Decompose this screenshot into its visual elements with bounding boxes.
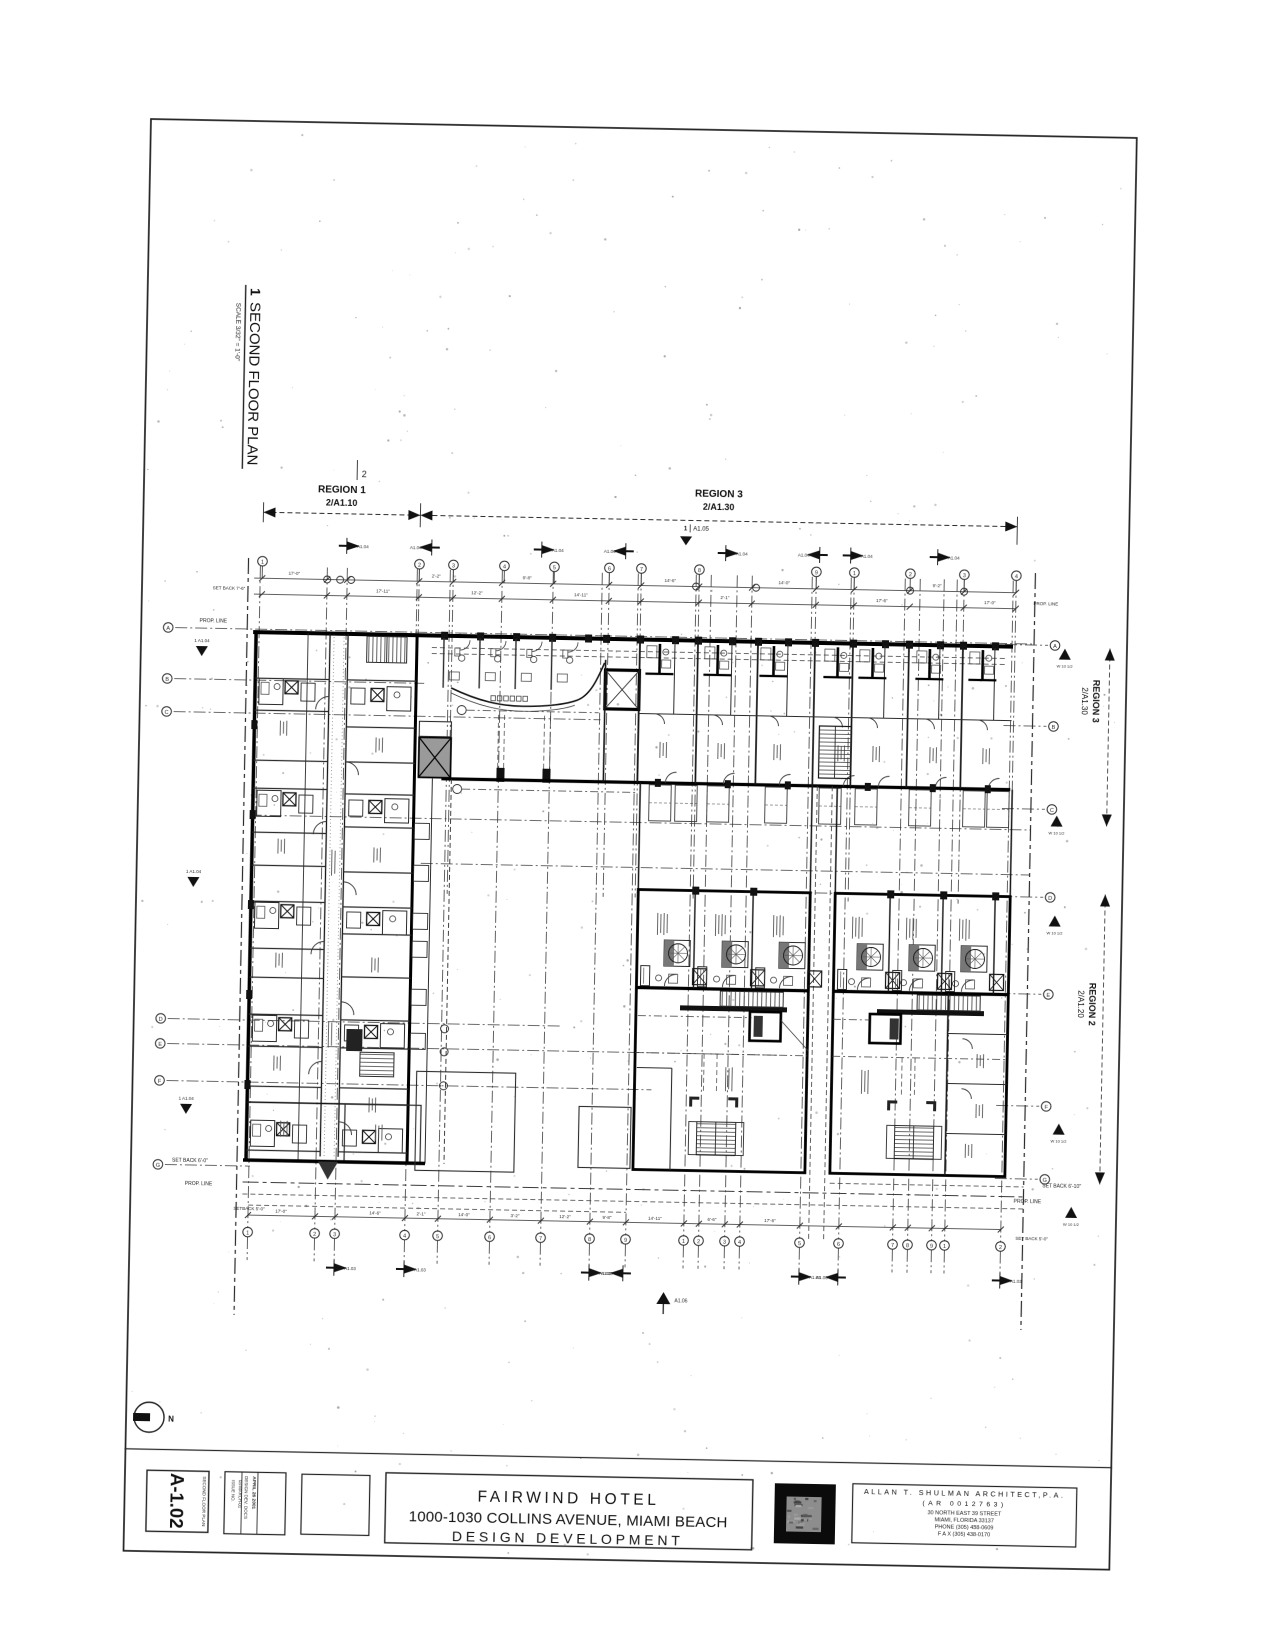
svg-text:A1.03: A1.03 <box>414 1267 426 1272</box>
svg-text:6: 6 <box>608 566 611 572</box>
svg-text:FAIRWIND HOTEL: FAIRWIND HOTEL <box>477 1489 659 1509</box>
svg-text:A1.03: A1.03 <box>816 1275 828 1280</box>
svg-text:14'-6": 14'-6" <box>664 578 676 583</box>
svg-text:MIAMI, FLORIDA 33137: MIAMI, FLORIDA 33137 <box>935 1517 994 1524</box>
svg-text:APRIL 26 2001: APRIL 26 2001 <box>250 1476 257 1509</box>
svg-text:E: E <box>158 1042 162 1048</box>
svg-text:1 A1.04: 1 A1.04 <box>179 1096 195 1101</box>
svg-text:9: 9 <box>624 1238 627 1244</box>
svg-text:PHONE (305) 438-0609: PHONE (305) 438-0609 <box>935 1524 994 1531</box>
svg-text:A1.04: A1.04 <box>736 551 748 556</box>
svg-text:9: 9 <box>815 570 818 576</box>
svg-text:DESIGN DEVELOPMENT: DESIGN DEVELOPMENT <box>452 1528 684 1548</box>
svg-text:2: 2 <box>697 1239 700 1245</box>
svg-text:1 A1.04: 1 A1.04 <box>186 869 202 874</box>
svg-text:A1.03: A1.03 <box>344 1266 356 1271</box>
svg-text:4: 4 <box>738 1240 741 1246</box>
svg-text:17'-11": 17'-11" <box>376 588 390 593</box>
svg-text:1: 1 <box>246 1231 249 1237</box>
svg-text:G: G <box>156 1163 160 1169</box>
svg-text:6'-6": 6'-6" <box>707 1217 716 1222</box>
svg-text:A: A <box>1053 644 1057 650</box>
svg-text:2'-1": 2'-1" <box>720 595 729 600</box>
svg-text:D: D <box>1048 896 1052 902</box>
svg-text:SCALE 3/32" = 1'-0": SCALE 3/32" = 1'-0" <box>233 303 241 362</box>
svg-text:REGION 3: REGION 3 <box>695 489 743 501</box>
svg-text:3: 3 <box>723 1240 726 1246</box>
svg-text:1: 1 <box>684 526 688 532</box>
svg-text:A1.04: A1.04 <box>410 545 422 550</box>
svg-text:REGION 2: REGION 2 <box>1087 983 1098 1026</box>
svg-text:C: C <box>1050 808 1054 814</box>
svg-text:12'-2": 12'-2" <box>471 590 483 595</box>
svg-text:2/A1.30: 2/A1.30 <box>703 502 735 513</box>
svg-text:2: 2 <box>418 563 421 569</box>
svg-text:7: 7 <box>640 567 643 573</box>
svg-text:B: B <box>165 677 169 683</box>
svg-text:2: 2 <box>362 469 367 479</box>
svg-text:A-1.02: A-1.02 <box>166 1473 188 1529</box>
svg-text:03-MARCH-01: 03-MARCH-01 <box>237 1480 243 1509</box>
svg-text:A1.05: A1.05 <box>693 527 709 533</box>
svg-text:A1.04: A1.04 <box>604 549 616 554</box>
svg-text:A1.04: A1.04 <box>552 548 564 553</box>
svg-text:A1.03: A1.03 <box>601 1271 613 1276</box>
svg-text:A1.03: A1.03 <box>1010 1279 1022 1284</box>
svg-text:1: 1 <box>853 571 856 577</box>
svg-text:DESIGN DEV. DOCS: DESIGN DEV. DOCS <box>243 1476 249 1519</box>
svg-text:12'-2": 12'-2" <box>559 1214 571 1219</box>
svg-text:1 A1.04: 1 A1.04 <box>194 638 210 643</box>
svg-text:W 10 1/2: W 10 1/2 <box>1050 1138 1067 1143</box>
svg-text:B: B <box>1052 725 1056 731</box>
svg-text:A1.04: A1.04 <box>948 555 960 560</box>
svg-text:F: F <box>1044 1105 1048 1111</box>
svg-text:9'-8": 9'-8" <box>602 1215 611 1220</box>
svg-text:A1.04: A1.04 <box>861 554 873 559</box>
svg-text:4: 4 <box>1015 574 1018 580</box>
svg-text:5: 5 <box>436 1234 439 1240</box>
svg-text:2/A1.30: 2/A1.30 <box>1080 687 1090 715</box>
svg-text:5: 5 <box>798 1241 801 1247</box>
svg-text:PROP. LINE: PROP. LINE <box>1033 601 1058 606</box>
svg-text:PROP. LINE: PROP. LINE <box>185 1181 213 1188</box>
svg-text:PROP. LINE: PROP. LINE <box>1014 1199 1042 1206</box>
svg-text:2: 2 <box>313 1232 316 1238</box>
svg-text:1: 1 <box>682 1239 685 1245</box>
svg-text:SET BACK 6'-0": SET BACK 6'-0" <box>172 1158 208 1165</box>
svg-text:(AR 0012763): (AR 0012763) <box>922 1500 1006 1509</box>
svg-text:E: E <box>1046 993 1050 999</box>
svg-text:17'-6": 17'-6" <box>876 598 888 603</box>
svg-text:A1.06: A1.06 <box>674 1298 687 1304</box>
svg-text:SET BACK 7'-6": SET BACK 7'-6" <box>213 585 246 591</box>
svg-text:D: D <box>159 1017 163 1023</box>
svg-text:F A X (305) 438-0170: F A X (305) 438-0170 <box>938 1531 990 1538</box>
svg-text:W 10 1/2: W 10 1/2 <box>1046 930 1063 935</box>
svg-text:REGION 3: REGION 3 <box>1091 680 1102 723</box>
svg-text:W 10 1/2: W 10 1/2 <box>1057 664 1074 669</box>
svg-text:SECOND FLOOR PLAN: SECOND FLOOR PLAN <box>243 302 263 466</box>
svg-text:2: 2 <box>909 572 912 578</box>
svg-text:2'-1": 2'-1" <box>416 1211 425 1216</box>
svg-text:SET BACK 6'-10": SET BACK 6'-10" <box>1042 1183 1081 1190</box>
svg-text:8: 8 <box>588 1237 591 1243</box>
svg-text:6: 6 <box>837 1242 840 1248</box>
svg-text:1: 1 <box>248 288 264 296</box>
svg-text:SET BACK 5'-0": SET BACK 5'-0" <box>1015 1236 1048 1242</box>
svg-text:SETBACK 5'-0": SETBACK 5'-0" <box>233 1206 265 1212</box>
svg-text:ALLAN T. SHULMAN ARCHITECT,P.A: ALLAN T. SHULMAN ARCHITECT,P.A. <box>864 1487 1066 1500</box>
svg-text:9'-2": 9'-2" <box>933 583 942 588</box>
svg-text:1: 1 <box>261 560 264 566</box>
svg-text:6: 6 <box>488 1235 491 1241</box>
svg-text:2/A1.10: 2/A1.10 <box>326 497 358 508</box>
svg-text:9'-8": 9'-8" <box>523 575 532 580</box>
svg-text:3: 3 <box>963 573 966 579</box>
svg-text:5: 5 <box>553 565 556 571</box>
svg-text:4: 4 <box>403 1234 406 1240</box>
svg-text:SECOND FLOOR PLAN: SECOND FLOOR PLAN <box>201 1476 207 1526</box>
svg-text:17'-6": 17'-6" <box>764 1218 776 1223</box>
svg-text:9: 9 <box>930 1244 933 1250</box>
svg-text:N: N <box>168 1415 174 1424</box>
svg-text:8: 8 <box>906 1243 909 1249</box>
svg-text:14'-11": 14'-11" <box>648 1216 662 1221</box>
svg-text:REGION 1: REGION 1 <box>318 484 366 496</box>
svg-text:14'-0": 14'-0" <box>778 580 790 585</box>
svg-text:A1.04: A1.04 <box>357 544 369 549</box>
svg-text:7: 7 <box>891 1243 894 1249</box>
svg-text:14'-0": 14'-0" <box>458 1212 470 1217</box>
svg-text:4: 4 <box>503 564 506 570</box>
svg-text:A1.04: A1.04 <box>798 553 810 558</box>
svg-text:7: 7 <box>539 1236 542 1242</box>
svg-text:W 10 1/2: W 10 1/2 <box>1048 830 1065 835</box>
svg-text:C: C <box>165 710 169 716</box>
svg-text:1: 1 <box>943 1244 946 1250</box>
svg-text:8: 8 <box>698 568 701 574</box>
svg-text:17'-0": 17'-0" <box>984 600 996 605</box>
svg-text:2'-2": 2'-2" <box>432 573 441 578</box>
svg-text:3: 3 <box>452 563 455 569</box>
svg-text:F: F <box>158 1079 162 1085</box>
svg-text:ISSUE NO.: ISSUE NO. <box>230 1480 235 1502</box>
svg-text:17'-0": 17'-0" <box>275 1209 287 1214</box>
svg-text:A: A <box>166 626 170 632</box>
svg-text:W 10 1/2: W 10 1/2 <box>1063 1222 1080 1227</box>
svg-text:3: 3 <box>333 1232 336 1238</box>
svg-text:14'-11": 14'-11" <box>574 592 588 597</box>
svg-text:2: 2 <box>999 1245 1002 1251</box>
svg-text:PROP. LINE: PROP. LINE <box>200 618 228 625</box>
svg-text:2/A1.20: 2/A1.20 <box>1076 990 1086 1018</box>
svg-text:14'-6": 14'-6" <box>369 1210 381 1215</box>
svg-text:3'-2": 3'-2" <box>510 1213 519 1218</box>
svg-text:17'-0": 17'-0" <box>289 571 301 576</box>
